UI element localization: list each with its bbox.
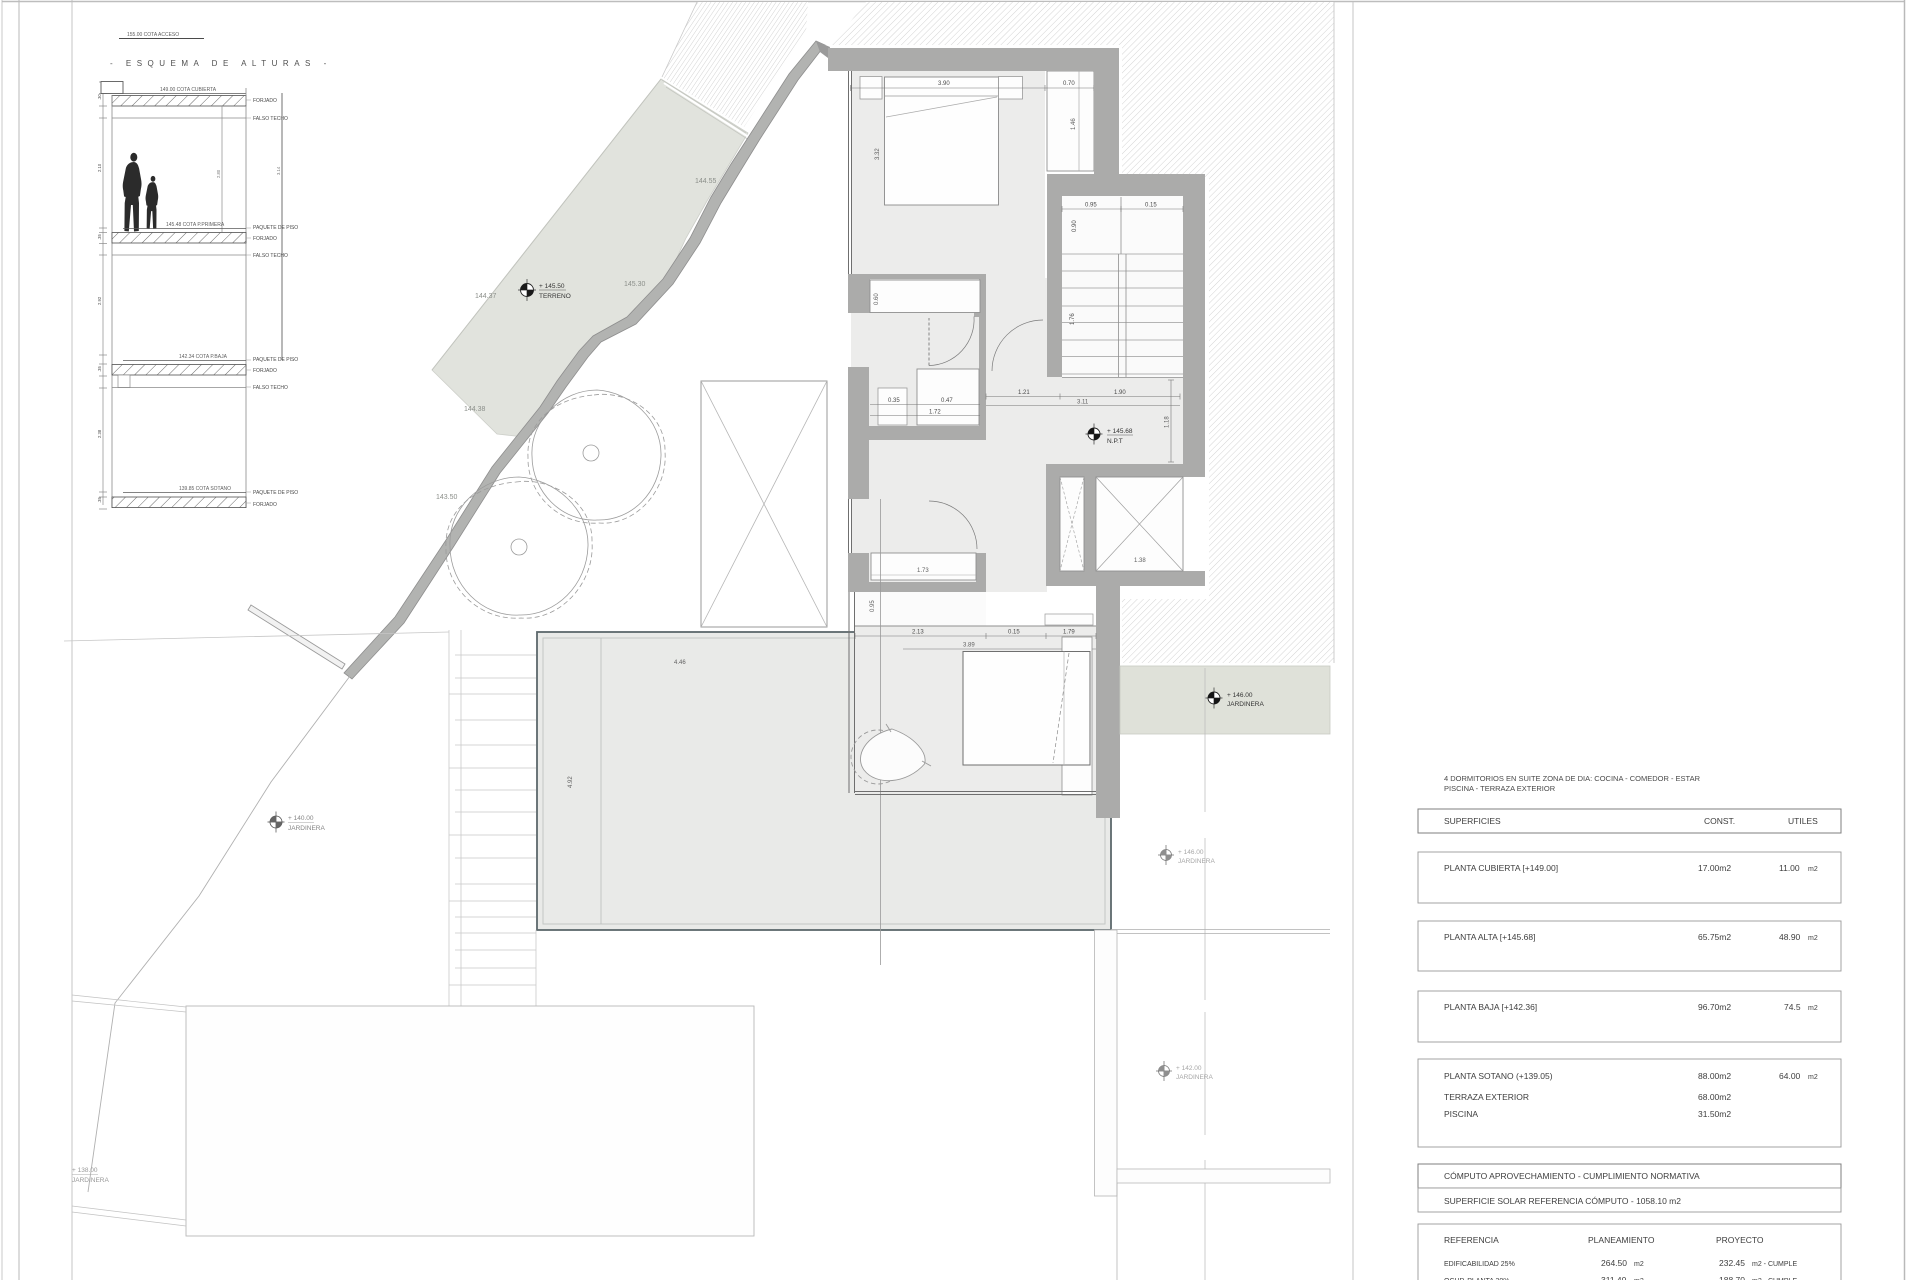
svg-text:1.73: 1.73: [917, 568, 929, 574]
svg-text:PLANTA BAJA [+142.36]: PLANTA BAJA [+142.36]: [1444, 1002, 1537, 1012]
svg-text:FALSO TECHO: FALSO TECHO: [253, 116, 288, 122]
svg-text:FALSO TECHO: FALSO TECHO: [253, 253, 288, 259]
svg-text:188.70: 188.70: [1719, 1275, 1745, 1280]
svg-text:2.10: 2.10: [97, 163, 102, 172]
svg-text:FALSO TECHO: FALSO TECHO: [253, 385, 288, 391]
svg-text:11.00: 11.00: [1779, 863, 1800, 873]
svg-text:96.70m2: 96.70m2: [1698, 1002, 1731, 1012]
svg-text:FORJADO: FORJADO: [253, 502, 277, 508]
svg-text:PISCINA: PISCINA: [1444, 1109, 1478, 1119]
svg-text:SUPERFICIES: SUPERFICIES: [1444, 816, 1501, 826]
svg-text:1.46: 1.46: [1071, 118, 1077, 130]
svg-text:.35: .35: [97, 234, 102, 240]
svg-text:1.76: 1.76: [1070, 313, 1076, 325]
svg-text:0.15: 0.15: [1008, 630, 1020, 636]
svg-text:2.92: 2.92: [97, 296, 102, 305]
svg-text:144.55: 144.55: [695, 178, 717, 185]
svg-text:74.5: 74.5: [1784, 1002, 1801, 1012]
svg-text:PLANEAMIENTO: PLANEAMIENTO: [1588, 1235, 1655, 1245]
svg-text:JARDINERA: JARDINERA: [1176, 1074, 1214, 1081]
svg-text:FORJADO: FORJADO: [253, 98, 277, 104]
svg-text:1.90: 1.90: [1114, 390, 1126, 396]
svg-text:TERRAZA EXTERIOR: TERRAZA EXTERIOR: [1444, 1092, 1529, 1102]
svg-text:m2 - CUMPLE: m2 - CUMPLE: [1752, 1261, 1797, 1268]
svg-text:3.11: 3.11: [1077, 400, 1089, 406]
svg-text:PAQUETE DE PISO: PAQUETE DE PISO: [253, 225, 298, 231]
svg-text:2.13: 2.13: [912, 630, 924, 636]
svg-text:0.95: 0.95: [870, 600, 876, 612]
svg-text:+ 145.50: + 145.50: [539, 283, 565, 290]
svg-text:+ 138.00: + 138.00: [72, 1167, 98, 1174]
svg-text:+ 140.00: + 140.00: [288, 815, 314, 822]
svg-text:PLANTA ALTA [+145.68]: PLANTA ALTA [+145.68]: [1444, 932, 1535, 942]
svg-text:PISCINA - TERRAZA EXTERIOR: PISCINA - TERRAZA EXTERIOR: [1444, 784, 1556, 793]
svg-text:- ESQUEMA DE ALTURAS -: - ESQUEMA DE ALTURAS -: [110, 59, 332, 68]
svg-text:264.50: 264.50: [1601, 1258, 1627, 1268]
svg-text:FORJADO: FORJADO: [253, 368, 277, 374]
svg-text:64.00: 64.00: [1779, 1071, 1801, 1081]
svg-text:+ 145.68: + 145.68: [1107, 428, 1133, 435]
svg-text:68.00m2: 68.00m2: [1698, 1092, 1731, 1102]
svg-text:EDIFICABILIDAD 25%: EDIFICABILIDAD 25%: [1444, 1261, 1515, 1268]
svg-text:PLANTA CUBIERTA [+149.00]: PLANTA CUBIERTA [+149.00]: [1444, 863, 1558, 873]
svg-text:145.48 COTA P.PRIMERA: 145.48 COTA P.PRIMERA: [166, 222, 225, 228]
svg-text:149.00 COTA CUBIERTA: 149.00 COTA CUBIERTA: [160, 87, 217, 93]
svg-text:139.85 COTA SOTANO: 139.85 COTA SOTANO: [179, 486, 231, 492]
svg-text:FORJADO: FORJADO: [253, 236, 277, 242]
svg-text:PLANTA SOTANO (+139.05): PLANTA SOTANO (+139.05): [1444, 1071, 1553, 1081]
svg-text:3.14: 3.14: [276, 166, 281, 175]
svg-text:PAQUETE DE PISO: PAQUETE DE PISO: [253, 490, 298, 496]
svg-text:m2: m2: [1808, 866, 1818, 873]
svg-text:JARDINERA: JARDINERA: [72, 1177, 110, 1184]
svg-text:REFERENCIA: REFERENCIA: [1444, 1235, 1499, 1245]
svg-text:1.38: 1.38: [1134, 558, 1146, 564]
svg-text:3.90: 3.90: [938, 81, 950, 87]
svg-text:143.50: 143.50: [436, 494, 458, 501]
svg-text:142.34 COTA P.BAJA: 142.34 COTA P.BAJA: [179, 354, 228, 360]
svg-text:+ 142.00: + 142.00: [1176, 1065, 1202, 1072]
svg-text:PAQUETE DE PISO: PAQUETE DE PISO: [253, 357, 298, 363]
svg-text:65.75m2: 65.75m2: [1698, 932, 1731, 942]
svg-text:232.45: 232.45: [1719, 1258, 1745, 1268]
svg-text:+ 146.00: + 146.00: [1178, 849, 1204, 856]
svg-text:m2: m2: [1808, 1005, 1818, 1012]
svg-text:CÓMPUTO APROVECHAMIENTO - CUMP: CÓMPUTO APROVECHAMIENTO - CUMPLIMIENTO N…: [1444, 1171, 1700, 1181]
svg-text:TERRENO: TERRENO: [539, 293, 571, 300]
svg-text:1.18: 1.18: [1165, 416, 1171, 428]
svg-text:145.30: 145.30: [624, 281, 646, 288]
svg-text:JARDINERA: JARDINERA: [1178, 858, 1216, 865]
svg-text:0.60: 0.60: [874, 293, 880, 305]
svg-text:3.32: 3.32: [875, 148, 881, 160]
svg-text:4.92: 4.92: [568, 776, 574, 788]
svg-text:155.00 COTA ACCESO: 155.00 COTA ACCESO: [127, 32, 179, 38]
svg-text:N.P.T: N.P.T: [1107, 438, 1123, 445]
svg-text:.30: .30: [97, 94, 102, 100]
svg-text:.35: .35: [97, 366, 102, 372]
svg-text:1.72: 1.72: [929, 410, 941, 416]
svg-text:+ 146.00: + 146.00: [1227, 692, 1253, 699]
svg-text:144.37: 144.37: [475, 293, 497, 300]
svg-text:17.00m2: 17.00m2: [1698, 863, 1731, 873]
svg-text:0.95: 0.95: [1085, 203, 1097, 209]
svg-text:3.89: 3.89: [963, 643, 975, 649]
svg-text:2.38: 2.38: [97, 429, 102, 438]
svg-text:1.21: 1.21: [1018, 390, 1030, 396]
svg-text:m2: m2: [1808, 1074, 1818, 1081]
svg-text:JARDINERA: JARDINERA: [1227, 701, 1265, 708]
svg-text:2.80: 2.80: [216, 169, 221, 178]
svg-text:0.35: 0.35: [888, 398, 900, 404]
svg-text:0.90: 0.90: [1072, 220, 1078, 232]
svg-text:48.90: 48.90: [1779, 932, 1801, 942]
svg-text:PROYECTO: PROYECTO: [1716, 1235, 1764, 1245]
svg-text:JARDINERA: JARDINERA: [288, 825, 326, 832]
svg-text:31.50m2: 31.50m2: [1698, 1109, 1731, 1119]
svg-text:m2: m2: [1808, 935, 1818, 942]
svg-text:CONST.: CONST.: [1704, 816, 1735, 826]
svg-text:m2: m2: [1634, 1261, 1644, 1268]
svg-text:SUPERFICIE SOLAR REFERENCIA CÓ: SUPERFICIE SOLAR REFERENCIA CÓMPUTO - 10…: [1444, 1196, 1681, 1206]
svg-text:144.38: 144.38: [464, 406, 486, 413]
svg-text:4 DORMITORIOS EN SUITE ZONA DE: 4 DORMITORIOS EN SUITE ZONA DE DIA: COCI…: [1444, 774, 1701, 783]
svg-text:0.47: 0.47: [941, 398, 953, 404]
svg-text:4.46: 4.46: [674, 660, 686, 666]
svg-text:UTILES: UTILES: [1788, 816, 1818, 826]
svg-text:88.00m2: 88.00m2: [1698, 1071, 1731, 1081]
svg-text:0.15: 0.15: [1145, 203, 1157, 209]
svg-text:0.70: 0.70: [1063, 81, 1075, 87]
svg-text:.35: .35: [97, 497, 102, 503]
svg-text:1.79: 1.79: [1063, 630, 1075, 636]
svg-text:311.40: 311.40: [1601, 1275, 1627, 1280]
